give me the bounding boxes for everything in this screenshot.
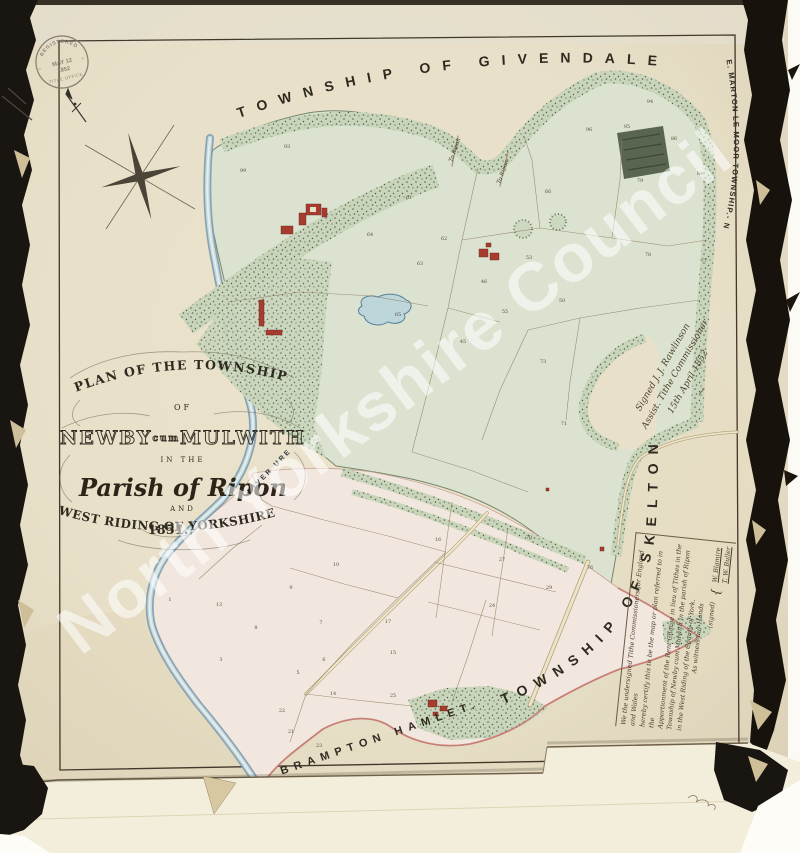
parcel-number: 65 — [395, 312, 401, 318]
parcel-number: 10 — [333, 562, 339, 568]
parcel-number: 3 — [219, 657, 222, 663]
parcel-number: 78 — [645, 252, 651, 258]
parcel-number: 76 — [587, 565, 593, 571]
parcel-number: 1 — [168, 597, 171, 603]
parcel-number: 71 — [561, 421, 567, 427]
parcel-number: 25 — [390, 693, 396, 699]
parcel-number: 73 — [540, 359, 546, 365]
parcel-number: 13 — [216, 602, 222, 608]
cartouche-line6: AND — [169, 505, 196, 513]
parcel-number: 64 — [367, 232, 373, 238]
scanned-tithe-map-photo: TOWNSHIP OF GIVENDALE E. MARTON LE MOOR … — [0, 0, 800, 853]
parcel-number: 5 — [296, 670, 299, 676]
pond — [359, 294, 412, 325]
parcel-number: 27 — [499, 557, 505, 563]
cartouche-line4: IN THE — [161, 456, 206, 464]
parcel-number: 16 — [435, 537, 441, 543]
parcel-number: 63 — [417, 261, 423, 267]
parcel-number: 15 — [390, 650, 396, 656]
signed-label: (signed) — [706, 602, 727, 630]
cartouche-year: 1851. — [148, 523, 189, 538]
parcel-number: 95 — [624, 124, 630, 130]
parcel-number: 46 — [481, 279, 487, 285]
parcel-number: 99 — [240, 168, 246, 174]
cartouche-township-name: NEWBYcumMULWITH — [60, 427, 306, 449]
parcel-number: 86 — [671, 136, 677, 142]
plantation-block — [617, 126, 670, 179]
parcel-number: 62 — [441, 236, 447, 242]
parcel-number: 50 — [559, 298, 565, 304]
parcel-number: 29 — [546, 585, 552, 591]
parcel-number: 23 — [316, 743, 322, 749]
parcel-number: 24 — [489, 603, 495, 609]
signature-brace: { — [710, 588, 729, 598]
parcel-number: 96 — [586, 127, 592, 133]
certification-block: We the undersigned Tithe Commissioners f… — [615, 532, 736, 736]
parcel-number: 61 — [406, 195, 412, 201]
parcel-number: 93 — [284, 144, 290, 150]
parcel-number: 53 — [526, 255, 532, 261]
parcel-number: 8 — [254, 625, 257, 631]
parcel-number: 84 — [697, 171, 703, 177]
parcel-number: 17 — [385, 619, 391, 625]
parcel-number: 21 — [288, 729, 294, 735]
cartouche-line2: OF — [174, 403, 192, 412]
parcel-number: 6 — [322, 657, 325, 663]
parcel-number: 66 — [545, 189, 551, 195]
parcel-number: 45 — [460, 339, 466, 345]
parcel-number: 70 — [526, 535, 532, 541]
parcel-number: 7 — [319, 620, 322, 626]
parcel-number: 94 — [647, 99, 653, 105]
parcel-number: 77 — [701, 258, 707, 264]
parcel-number: 14 — [330, 691, 336, 697]
parcel-number: 55 — [502, 309, 508, 315]
parcel-number: 9 — [289, 585, 292, 591]
parcel-number: 22 — [279, 708, 285, 714]
parcel-number: 79 — [637, 178, 643, 184]
cartouche-parish-of-ripon: Parish of Ripon — [78, 473, 287, 502]
